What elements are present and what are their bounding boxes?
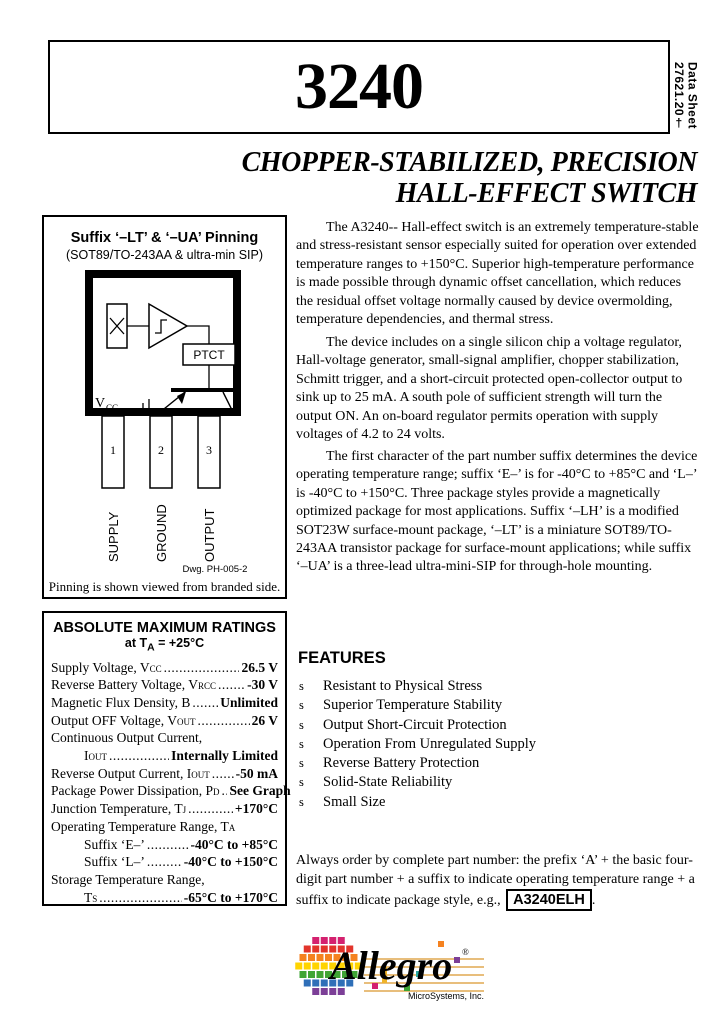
bullet-glyph: s bbox=[299, 698, 323, 713]
bullet-glyph: s bbox=[299, 718, 323, 733]
pinning-subtitle: (SOT89/TO-243AA & ultra-min SIP) bbox=[44, 248, 285, 262]
pin-3-number: 3 bbox=[206, 443, 212, 457]
feature-item: sSmall Size bbox=[299, 794, 699, 813]
vcc-sub: CC bbox=[106, 403, 118, 413]
feature-item: sOperation From Unregulated Supply bbox=[299, 736, 699, 755]
drawing-reference: Dwg. PH-005-2 bbox=[182, 564, 247, 574]
rating-junction-temperature: Junction Temperature, TJ+170°C bbox=[44, 800, 285, 818]
allegro-logo-image: Allegro ® MicroSystems, Inc. bbox=[286, 933, 486, 1005]
schmitt-amplifier-icon bbox=[149, 304, 187, 348]
company-name: MicroSystems, Inc. bbox=[408, 991, 484, 1001]
rating-suffix-e: Suffix ‘E–’-40°C to +85°C bbox=[44, 836, 285, 854]
feature-item: sOutput Short-Circuit Protection bbox=[299, 717, 699, 736]
pin-2-label: GROUND bbox=[154, 504, 169, 562]
title-box: 3240 bbox=[48, 40, 670, 134]
pin-1-label: SUPPLY bbox=[106, 511, 121, 562]
rating-continuous-output-current: Continuous Output Current, bbox=[44, 729, 285, 747]
features-title: FEATURES bbox=[298, 649, 386, 668]
feature-item: sResistant to Physical Stress bbox=[299, 678, 699, 697]
absolute-maximum-ratings-box: ABSOLUTE MAXIMUM RATINGS at TA = +25°C S… bbox=[42, 611, 287, 906]
subtitle-line-2: HALL-EFFECT SWITCH bbox=[242, 178, 697, 209]
bullet-glyph: s bbox=[299, 737, 323, 752]
rating-reverse-output-current: Reverse Output Current, IOUT-50 mA bbox=[44, 765, 285, 783]
rating-magnetic-flux-density: Magnetic Flux Density, BUnlimited bbox=[44, 694, 285, 712]
doc-reference: Data Sheet 27621.20† bbox=[671, 62, 699, 131]
rating-suffix-l: Suffix ‘L–’-40°C to +150°C bbox=[44, 853, 285, 871]
features-list: sResistant to Physical Stress sSuperior … bbox=[299, 678, 699, 813]
doc-number: 27621.20† bbox=[671, 62, 685, 131]
pin-2-number: 2 bbox=[158, 443, 164, 457]
pin-1-number: 1 bbox=[110, 443, 116, 457]
ordering-note: Always order by complete part number: th… bbox=[296, 851, 700, 911]
page-title: 3240 bbox=[295, 49, 423, 125]
bullet-glyph: s bbox=[299, 775, 323, 790]
description-paragraph-2: The device includes on a single silicon … bbox=[296, 334, 700, 444]
feature-item: sReverse Battery Protection bbox=[299, 755, 699, 774]
rating-reverse-battery-voltage: Reverse Battery Voltage, VRCC-30 V bbox=[44, 676, 285, 694]
rating-ts: TS-65°C to +170°C bbox=[44, 889, 285, 907]
bullet-glyph: s bbox=[299, 795, 323, 810]
ptct-label: PTCT bbox=[193, 348, 225, 362]
description-paragraph-3: The first character of the part number s… bbox=[296, 448, 700, 577]
pinning-box: Suffix ‘–LT’ & ‘–UA’ Pinning (SOT89/TO-2… bbox=[42, 215, 287, 599]
ratings-subtitle: at TA = +25°C bbox=[44, 636, 285, 654]
datasheet-page: 3240 Data Sheet 27621.20† CHOPPER-STABIL… bbox=[0, 0, 720, 1012]
ratings-title: ABSOLUTE MAXIMUM RATINGS bbox=[44, 620, 285, 636]
description-paragraph-1: The A3240-- Hall-effect switch is an ext… bbox=[296, 219, 700, 329]
feature-item: sSuperior Temperature Stability bbox=[299, 697, 699, 716]
rating-operating-temp-range: Operating Temperature Range, TA bbox=[44, 818, 285, 836]
vcc-label: V bbox=[95, 396, 105, 411]
rating-storage-temp-range: Storage Temperature Range, bbox=[44, 871, 285, 889]
pinning-title: Suffix ‘–LT’ & ‘–UA’ Pinning bbox=[44, 230, 285, 246]
pinning-caption: Pinning is shown viewed from branded sid… bbox=[44, 579, 285, 595]
feature-item: sSolid-State Reliability bbox=[299, 774, 699, 793]
bullet-glyph: s bbox=[299, 679, 323, 694]
brand-name: Allegro bbox=[327, 943, 452, 988]
document-subtitle: CHOPPER-STABILIZED, PRECISION HALL-EFFEC… bbox=[242, 147, 697, 210]
rating-package-power-dissipation: Package Power Dissipation, PDSee Graph bbox=[44, 782, 285, 800]
pinning-diagram: PTCT V CC 1 2 3 SUPPLY GROUND OUTPUT Dwg… bbox=[49, 264, 281, 574]
allegro-logo: Allegro ® MicroSystems, Inc. bbox=[286, 933, 486, 1010]
example-part-number: A3240ELH bbox=[506, 889, 592, 911]
registered-mark: ® bbox=[462, 947, 469, 957]
doc-type: Data Sheet bbox=[685, 62, 699, 131]
subtitle-line-1: CHOPPER-STABILIZED, PRECISION bbox=[242, 147, 697, 178]
rating-output-off-voltage: Output OFF Voltage, VOUT26 V bbox=[44, 712, 285, 730]
bullet-glyph: s bbox=[299, 756, 323, 771]
rating-iout: IOUTInternally Limited bbox=[44, 747, 285, 765]
rating-supply-voltage: Supply Voltage, VCC26.5 V bbox=[44, 659, 285, 677]
pin-3-label: OUTPUT bbox=[202, 509, 217, 563]
